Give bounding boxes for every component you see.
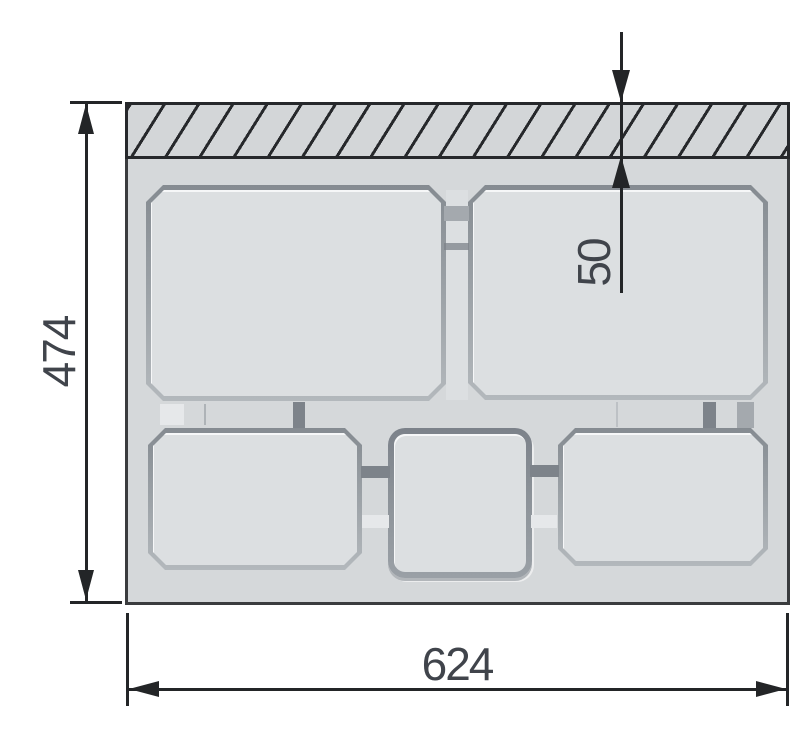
pocket-bottom-right-floor (563, 433, 763, 561)
channel-tab-lower (444, 243, 469, 250)
dim-height-tick-bottom (70, 601, 122, 604)
dim-height-line (85, 103, 88, 603)
dim-height-arrow-top (78, 104, 94, 134)
channel-notch-right (737, 402, 754, 428)
dim-depth-arrow-down (612, 70, 630, 102)
channel-tab-upper (444, 206, 469, 221)
connector-center-to-bottomright (530, 465, 559, 477)
connector-topright-to-channel (703, 402, 716, 428)
channel-divider-right (616, 402, 618, 427)
section-hatch-band (125, 102, 790, 159)
channel-notch-left (160, 404, 184, 425)
connector-light-right (531, 515, 557, 528)
dim-width-label: 624 (417, 644, 497, 684)
pocket-top-right-floor (473, 190, 763, 395)
dim-height-arrow-bottom (78, 570, 94, 600)
channel-top-center (446, 190, 468, 400)
pocket-bottom-left (148, 428, 362, 570)
dim-height-label: 474 (39, 312, 79, 392)
dim-depth-arrow-up (612, 156, 630, 188)
pocket-bottom-center-floor (394, 434, 526, 572)
channel-divider-left (204, 404, 206, 425)
dim-width-arrow-left (129, 681, 159, 697)
connector-topleft-to-channel (293, 402, 305, 428)
pocket-top-left-floor (151, 190, 441, 396)
pocket-bottom-left-floor (153, 433, 357, 565)
technical-drawing-canvas: 474 624 50 (0, 0, 800, 741)
dim-width-ext-right (786, 613, 789, 706)
pocket-bottom-center (388, 428, 532, 578)
pocket-top-right (468, 185, 768, 400)
dim-width-arrow-right (756, 681, 786, 697)
pocket-top-left (146, 185, 446, 401)
dim-depth-label: 50 (574, 233, 614, 293)
connector-bottomleft-to-center (361, 466, 390, 478)
pocket-bottom-right (558, 428, 768, 566)
connector-light-left (362, 515, 389, 528)
